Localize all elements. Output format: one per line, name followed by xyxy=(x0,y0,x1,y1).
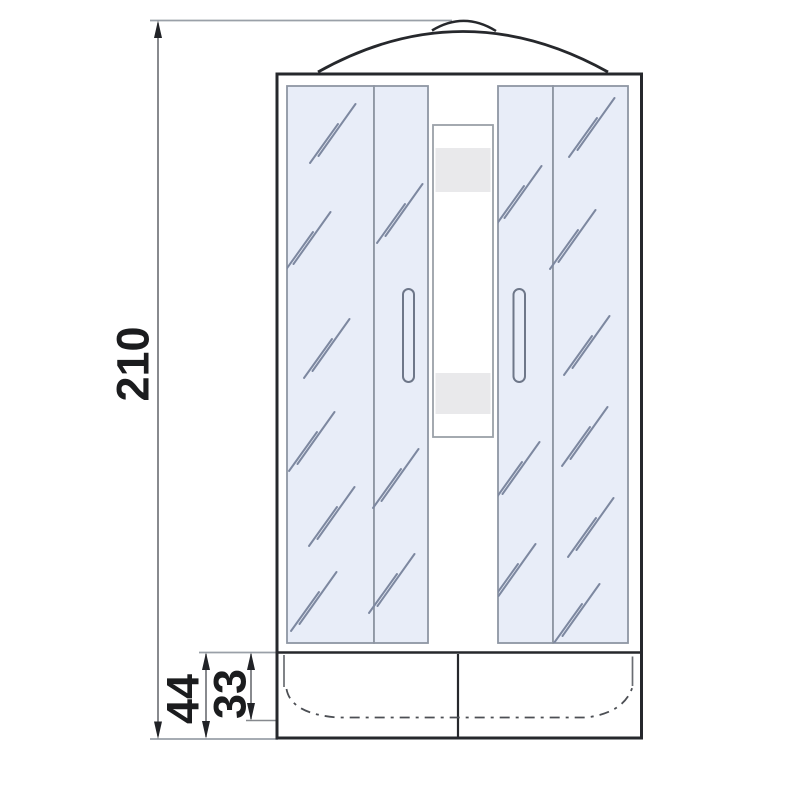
shower-cabin-technical-drawing: 210 44 33 xyxy=(0,0,800,800)
arrow-up-icon xyxy=(202,653,210,671)
center-column xyxy=(433,125,493,437)
tray-depth-label: 33 xyxy=(205,669,256,719)
base-height-label: 44 xyxy=(158,674,209,724)
overall-height-label: 210 xyxy=(108,326,159,401)
glass-panel-outer-right xyxy=(553,86,628,643)
dome-roof xyxy=(318,32,608,73)
shelf-top xyxy=(436,148,491,192)
drawing-canvas: 210 44 33 xyxy=(0,0,800,800)
dome-cap xyxy=(432,21,496,31)
glass-panel-door-left xyxy=(374,86,428,643)
glass-panel-outer-left xyxy=(287,86,374,643)
shower-cabin xyxy=(276,21,642,738)
arrow-up-icon xyxy=(154,21,162,39)
arrow-up-icon xyxy=(247,653,255,671)
dimension-overall-height: 210 xyxy=(108,21,163,740)
dimension-tray-depth: 33 xyxy=(205,653,256,721)
dimension-base-height: 44 xyxy=(158,653,211,739)
shelf-bottom xyxy=(436,373,491,414)
